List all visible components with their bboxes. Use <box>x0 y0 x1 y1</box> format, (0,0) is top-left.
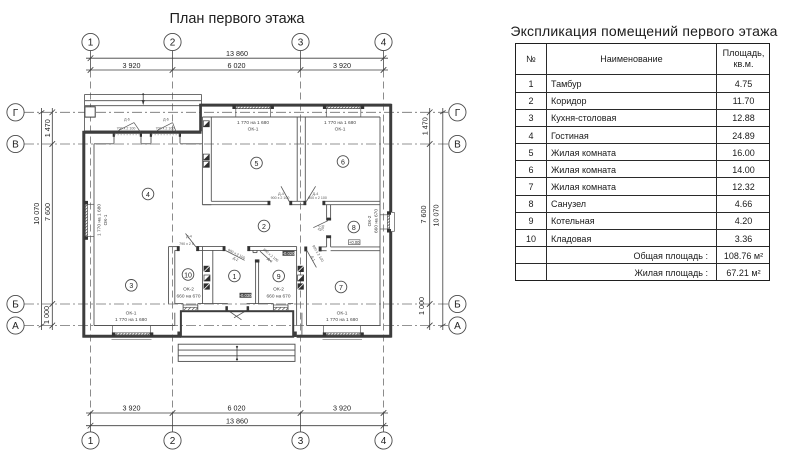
svg-text:8: 8 <box>352 225 356 232</box>
svg-text:2: 2 <box>170 38 176 49</box>
svg-text:ОК-2: ОК-2 <box>273 286 284 292</box>
svg-text:3: 3 <box>129 283 133 290</box>
svg-text:5: 5 <box>255 161 259 168</box>
svg-text:7 600: 7 600 <box>419 206 428 224</box>
svg-text:3 920: 3 920 <box>333 404 351 413</box>
svg-text:9: 9 <box>277 274 281 281</box>
svg-text:7: 7 <box>339 285 343 292</box>
svg-text:6 020: 6 020 <box>228 404 246 413</box>
svg-text:13 860: 13 860 <box>226 417 248 426</box>
svg-text:ОК-1: ОК-1 <box>103 214 109 225</box>
svg-text:1 470: 1 470 <box>421 117 430 135</box>
svg-text:Д-6: Д-6 <box>163 118 169 122</box>
svg-text:7 600: 7 600 <box>43 203 52 221</box>
svg-text:1 770 на 1 680: 1 770 на 1 680 <box>115 317 147 323</box>
svg-text:ОК-1: ОК-1 <box>335 127 346 133</box>
svg-text:3: 3 <box>298 38 304 49</box>
svg-text:ОК-2: ОК-2 <box>183 286 194 292</box>
svg-text:13 860: 13 860 <box>226 49 248 58</box>
svg-text:В: В <box>454 140 461 151</box>
svg-text:700 х 2 100: 700 х 2 100 <box>156 127 175 131</box>
svg-text:Г: Г <box>455 108 461 119</box>
svg-text:-0.020: -0.020 <box>283 251 296 256</box>
svg-text:10 070: 10 070 <box>432 205 441 227</box>
svg-text:А: А <box>454 321 461 332</box>
svg-text:3 920: 3 920 <box>123 61 141 70</box>
svg-text:4: 4 <box>381 436 387 447</box>
svg-text:1 770 на 1 680: 1 770 на 1 680 <box>97 204 103 236</box>
svg-text:-0.030: -0.030 <box>240 293 253 298</box>
svg-text:План первого этажа: План первого этажа <box>169 11 305 27</box>
svg-text:+0.00: +0.00 <box>349 240 360 245</box>
svg-text:900 х 2 100: 900 х 2 100 <box>271 196 290 200</box>
svg-text:6 020: 6 020 <box>228 61 246 70</box>
svg-text:1 770 на 1 680: 1 770 на 1 680 <box>324 120 356 126</box>
svg-text:900 х 2 100: 900 х 2 100 <box>308 196 327 200</box>
svg-text:700: 700 <box>321 225 326 231</box>
svg-text:1 770 на 1 680: 1 770 на 1 680 <box>326 317 358 323</box>
svg-text:ОК-1: ОК-1 <box>248 127 259 133</box>
svg-text:10: 10 <box>184 272 192 279</box>
svg-text:3: 3 <box>298 436 304 447</box>
svg-text:А: А <box>12 321 19 332</box>
svg-text:1 000: 1 000 <box>42 306 51 324</box>
svg-text:660 на 670: 660 на 670 <box>267 293 291 299</box>
svg-text:2: 2 <box>170 436 176 447</box>
svg-text:1: 1 <box>88 436 94 447</box>
svg-text:Г: Г <box>13 108 19 119</box>
svg-text:Д-6: Д-6 <box>124 118 130 122</box>
svg-text:1 470: 1 470 <box>43 119 52 137</box>
svg-text:1: 1 <box>232 274 236 281</box>
svg-text:1 000: 1 000 <box>417 297 426 315</box>
svg-text:660 на 670: 660 на 670 <box>374 209 380 233</box>
svg-text:В: В <box>12 140 19 151</box>
svg-text:Б: Б <box>454 300 461 311</box>
svg-text:Б: Б <box>12 300 19 311</box>
svg-text:3 920: 3 920 <box>123 404 141 413</box>
svg-text:3 920: 3 920 <box>333 61 351 70</box>
svg-text:6: 6 <box>341 159 345 166</box>
svg-text:4: 4 <box>146 192 150 199</box>
svg-text:10 070: 10 070 <box>32 203 41 225</box>
svg-text:Д-4: Д-4 <box>186 234 192 238</box>
svg-text:ОК-2: ОК-2 <box>367 215 373 226</box>
svg-text:660 на 670: 660 на 670 <box>177 293 201 299</box>
svg-text:ОК-1: ОК-1 <box>337 311 348 317</box>
svg-text:2: 2 <box>262 224 266 231</box>
svg-text:790 х 2 0: 790 х 2 0 <box>179 242 194 246</box>
svg-text:1: 1 <box>88 38 94 49</box>
svg-text:700 х 2 100: 700 х 2 100 <box>117 127 136 131</box>
svg-text:1 770 на 1 680: 1 770 на 1 680 <box>237 120 269 126</box>
svg-text:ОК-1: ОК-1 <box>126 311 137 317</box>
svg-text:4: 4 <box>381 38 387 49</box>
svg-text:Д-1: Д-1 <box>310 255 316 262</box>
